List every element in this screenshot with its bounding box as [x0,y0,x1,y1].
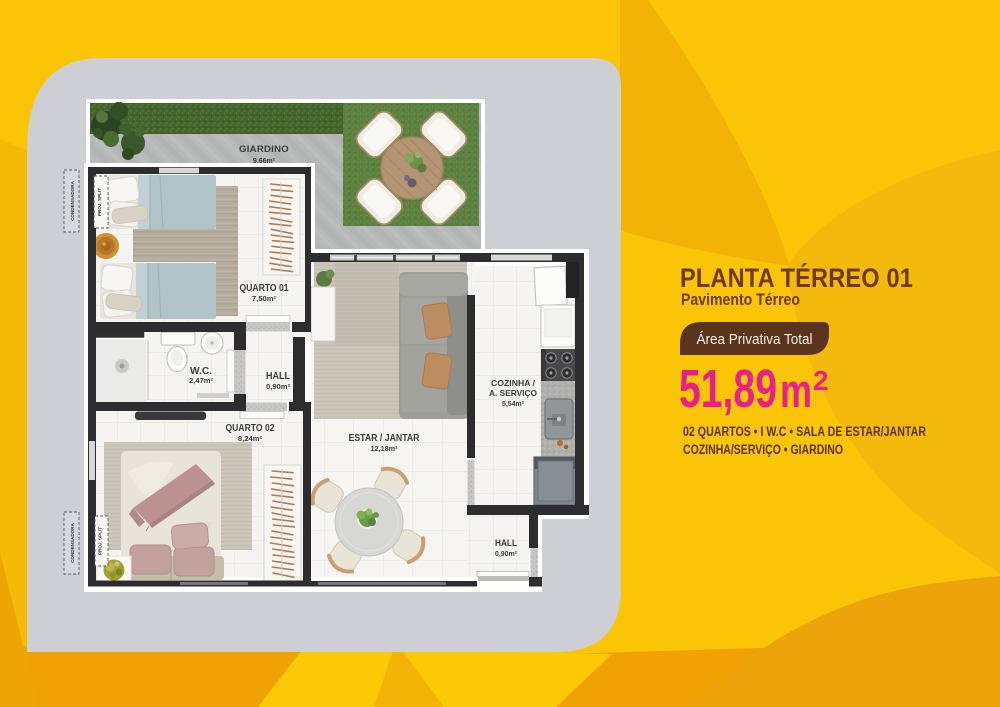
svg-text:5,54m²: 5,54m² [502,401,525,408]
svg-text:51,89: 51,89 [679,359,777,419]
svg-text:2,47m²: 2,47m² [189,376,214,385]
svg-text:ESTAR / JANTAR: ESTAR / JANTAR [349,433,421,444]
svg-text:0,90m²: 0,90m² [495,551,518,558]
svg-text:PLANTA TÉRREO 01: PLANTA TÉRREO 01 [680,262,913,293]
svg-text:HALL: HALL [266,371,290,382]
svg-text:HALL: HALL [495,538,517,548]
svg-text:QUARTO 01: QUARTO 01 [240,283,289,294]
svg-text:CONDENSADORA: CONDENSADORA [70,522,75,562]
svg-text:PROJ. SPLIT: PROJ. SPLIT [98,527,103,555]
svg-text:2: 2 [813,365,829,396]
svg-text:Área Privativa Total: Área Privativa Total [697,331,813,348]
svg-text:02 QUARTOS • I W.C • SALA DE E: 02 QUARTOS • I W.C • SALA DE ESTAR/JANTA… [683,424,926,439]
svg-text:A. SERVIÇO: A. SERVIÇO [489,388,537,398]
svg-text:m: m [780,364,812,417]
svg-text:COZINHA/SERVIÇO • GIARDINO: COZINHA/SERVIÇO • GIARDINO [683,442,843,457]
svg-text:CONDENSADORA: CONDENSADORA [70,180,75,220]
svg-text:COZINHA /: COZINHA / [491,378,536,388]
svg-text:12,18m²: 12,18m² [371,444,398,453]
svg-text:GIARDINO: GIARDINO [239,144,289,155]
svg-text:0,90m²: 0,90m² [266,382,291,391]
svg-text:8,24m²: 8,24m² [238,434,263,443]
svg-text:PROJ. SPLIT: PROJ. SPLIT [97,188,102,216]
svg-text:7,50m²: 7,50m² [252,294,277,303]
svg-text:Pavimento Térreo: Pavimento Térreo [681,291,800,309]
svg-text:QUARTO 02: QUARTO 02 [226,423,275,434]
